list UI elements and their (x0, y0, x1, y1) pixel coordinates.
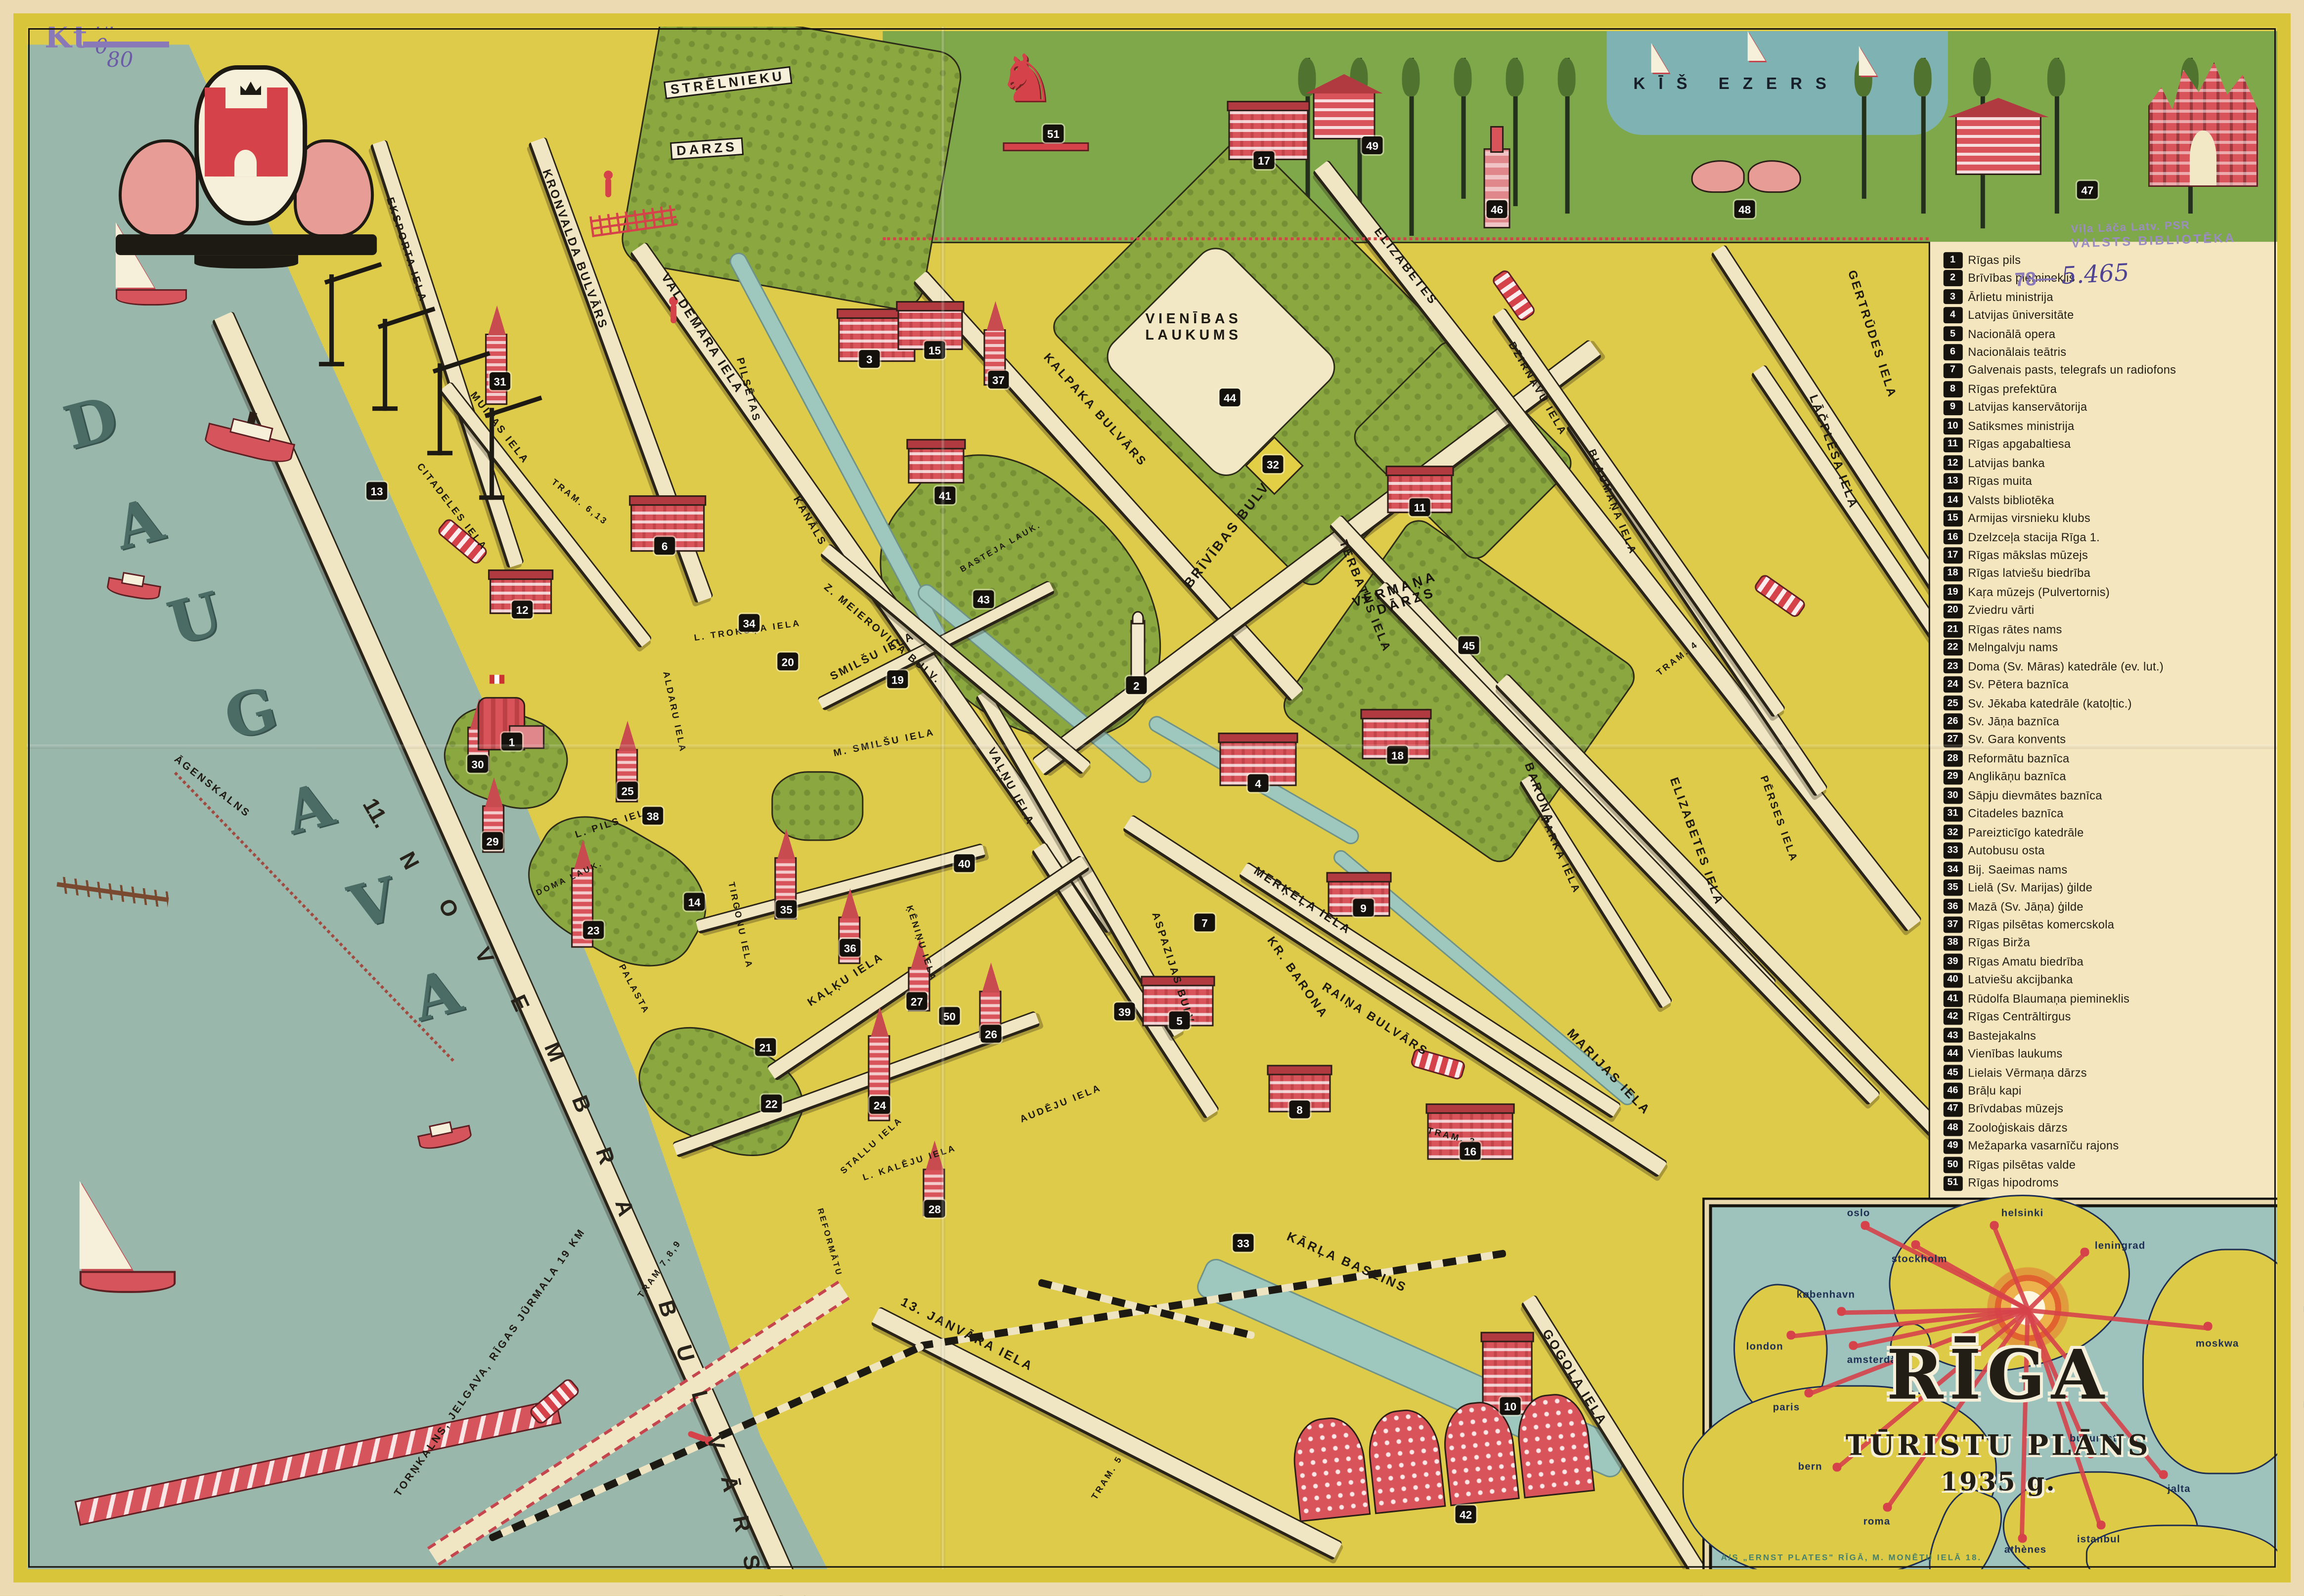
poi-marker-29: 29 (482, 832, 503, 850)
legend-number: 22 (1944, 640, 1962, 656)
poi-marker-34: 34 (739, 614, 759, 632)
legend-item: 35Lielā (Sv. Marijas) ģilde (1944, 880, 2092, 896)
legend-item: 15Armijas virsnieku klubs (1944, 511, 2090, 526)
legend-label: Rīgas muita (1968, 475, 2032, 488)
legend-number: 37 (1944, 917, 1962, 933)
street-label: AUDĒJU IELA (1019, 1083, 1103, 1125)
poi-marker-45: 45 (1459, 636, 1479, 654)
street-label: ALDARU IELA (660, 671, 686, 754)
legend-item: 48Zooloģiskais dārzs (1944, 1120, 2068, 1136)
legend-label: Sv. Pētera baznīca (1968, 678, 2069, 691)
poi-marker-42: 42 (1456, 1506, 1476, 1523)
legend-number: 19 (1944, 585, 1962, 601)
city-name: københavn (1797, 1291, 1855, 1301)
poi-marker-38: 38 (642, 807, 663, 824)
jump-hurdle (1003, 142, 1089, 151)
street-label: GERTRŪDES IELA (1845, 268, 1899, 400)
legend-label: Bij. Saeimas nams (1968, 863, 2067, 876)
legend-number: 43 (1944, 1028, 1962, 1043)
poi-marker-9: 9 (1353, 899, 1374, 916)
poi-marker-44: 44 (1219, 388, 1240, 406)
poi-marker-11: 11 (1410, 498, 1430, 516)
plaza-label: VIENĪBASLAUKUMS (1145, 311, 1241, 344)
legend-label: Rīgas pilsētas valde (1968, 1158, 2076, 1171)
city-name: athènes (2004, 1546, 2047, 1556)
legend-item: 49Mežaparka vasarnīču rajons (1944, 1138, 2119, 1154)
harbour-crane (329, 274, 334, 366)
poi-marker-47: 47 (2077, 181, 2098, 199)
poi-marker-25: 25 (617, 781, 638, 799)
riga-tourist-map-1935: VIENĪBASLAUKUMSSTRĒLNIEKUDARZSVĒRMAŅADĀR… (0, 0, 2304, 1596)
legend-item: 5Nacionālā opera (1944, 326, 2055, 342)
legend-label: Anglikāņu baznīca (1968, 770, 2066, 783)
legend-number: 33 (1944, 843, 1962, 859)
tennis-player (605, 178, 611, 197)
fold-crease-vertical (940, 0, 945, 1596)
city-dot (2204, 1322, 2212, 1330)
legend-item: 18Rīgas latviešu biedrība (1944, 566, 2090, 582)
legend-number: 1 (1944, 252, 1962, 268)
legend-label: Doma (Sv. Māras) katedrāle (ev. lut.) (1968, 659, 2164, 673)
lake-sailboat-icon (1651, 43, 1669, 73)
legend-number: 50 (1944, 1157, 1962, 1173)
city-name: helsinki (2001, 1208, 2044, 1219)
legend-number: 48 (1944, 1120, 1962, 1136)
city-dot (2097, 1520, 2105, 1529)
legend-item: 14Valsts bibliotēka (1944, 492, 2054, 508)
legend-label: Rīgas latviešu biedrība (1968, 567, 2090, 580)
legend-number: 4 (1944, 307, 1962, 323)
pine-tree (2055, 58, 2059, 214)
panorama-strip: KĪŠ EZERS (883, 31, 2282, 243)
city-name: istanbul (2077, 1535, 2121, 1546)
legend-label: Latvijas kanservātorija (1968, 401, 2087, 414)
hippodrome-horse-and-rider: ♞ (997, 47, 1055, 113)
legend-item: 20Zviedru vārti (1944, 603, 2035, 619)
publisher-imprint: A/S „ERNST PLATES" RĪGĀ, M. MONĒTU IELĀ … (1721, 1554, 1982, 1563)
legend-item: 33Autobusu osta (1944, 843, 2045, 859)
legend-number: 18 (1944, 566, 1962, 582)
city-name: oslo (1847, 1208, 1870, 1219)
legend-number: 44 (1944, 1046, 1962, 1062)
poi-marker-43: 43 (973, 590, 994, 608)
arms-bracket (116, 234, 377, 255)
legend-number: 26 (1944, 714, 1962, 730)
city-dot (1911, 1240, 1920, 1249)
legend-number: 39 (1944, 954, 1962, 970)
call-number-printed: 78 (2014, 267, 2037, 291)
legend-item: 41Rūdolfa Blaumaņa piemineklis (1944, 991, 2129, 1006)
legend-number: 12 (1944, 455, 1962, 471)
central-market-halls (1289, 1391, 1595, 1519)
library-stamp: Viļa Lāča Latv. PSR VALSTS BIBLIOTĒKA (2071, 216, 2236, 251)
poi-marker-4: 4 (1248, 774, 1269, 792)
legend-label: Vienības laukums (1968, 1047, 2062, 1061)
poi-marker-36: 36 (840, 939, 860, 956)
legend-item: 25Sv. Jēkaba katedrāle (katoļtic.) (1944, 695, 2132, 711)
legend-label: Kaŗa mūzejs (Pulvertornis) (1968, 586, 2110, 599)
sailboat-large (80, 1181, 176, 1293)
poi-marker-21: 21 (755, 1038, 776, 1056)
legend-number: 16 (1944, 529, 1962, 545)
public-building (908, 445, 964, 483)
legend-number: 24 (1944, 677, 1962, 692)
legend-item: 31Citadeles baznīca (1944, 806, 2064, 822)
city-dot (1837, 1307, 1845, 1315)
legend-number: 25 (1944, 695, 1962, 711)
pine-tree (1565, 58, 1569, 214)
pine-tree (1410, 58, 1414, 236)
riga-coat-of-arms (116, 56, 377, 264)
street-label: M. SMILŠU IELA (833, 728, 936, 759)
legend-label: Nacionālais teātris (1968, 345, 2066, 359)
street-label: KRONVALDA BULVĀRS (540, 168, 611, 332)
legend-label: Sv. Jēkaba katedrāle (katoļtic.) (1968, 696, 2132, 710)
stamp-code: Kt (44, 18, 89, 55)
legend-label: Rīgas rātes nams (1968, 623, 2062, 636)
legend-item: 46Brāļu kapi (1944, 1083, 2022, 1099)
church-building (485, 334, 507, 405)
tram-vehicle (1753, 573, 1808, 619)
tennis-player-2 (670, 304, 676, 323)
legend-label: Pareizticīgo katedrāle (1968, 825, 2083, 839)
legend-item: 32Pareizticīgo katedrāle (1944, 824, 2084, 840)
legend-label: Citadeles baznīca (1968, 807, 2063, 820)
freedom-monument (1130, 620, 1145, 685)
legend-number: 31 (1944, 806, 1962, 822)
map-subtitle: TŪRISTU PLĀNS (1712, 1430, 2285, 1463)
poi-marker-12: 12 (512, 601, 532, 618)
legend-label: Latvijas ūniversitāte (1968, 308, 2074, 322)
street-label: VALDEMĀRA IELA (659, 270, 748, 396)
legend-number: 38 (1944, 935, 1962, 951)
legend-item: 9Latvijas kanservātorija (1944, 400, 2087, 416)
legend-number: 6 (1944, 345, 1962, 360)
legend-label: Mazā (Sv. Jāņa) ģilde (1968, 900, 2083, 913)
legend-item: 21Rīgas rātes nams (1944, 621, 2062, 637)
legend-item: 42Rīgas Centrāltirgus (1944, 1009, 2071, 1025)
legend-number: 21 (1944, 621, 1962, 637)
legend-number: 40 (1944, 972, 1962, 988)
legend-number: 7 (1944, 363, 1962, 379)
castle-flag (489, 675, 504, 684)
legend-item: 8Rīgas prefektūra (1944, 382, 2057, 397)
legend-item: 22Melngalvju nams (1944, 640, 2058, 656)
poi-marker-37: 37 (988, 371, 1009, 388)
city-name: leningrad (2095, 1242, 2146, 1252)
legend-number: 34 (1944, 862, 1962, 877)
poi-marker-5: 5 (1169, 1011, 1190, 1029)
poi-marker-2: 2 (1126, 676, 1147, 694)
stamp-fraction-bar (83, 42, 169, 47)
legend-item: 51Rīgas hipodroms (1944, 1175, 2059, 1191)
legend-number: 13 (1944, 474, 1962, 489)
legend-item: 7Galvenais pasts, telegrafs un radiofons (1944, 363, 2176, 379)
legend-item: 47Brīvdabas mūzejs (1944, 1102, 2064, 1118)
call-number-handwritten: 5.465 (2061, 258, 2130, 290)
poi-marker-49: 49 (1362, 136, 1383, 154)
legend-item: 1Rīgas pils (1944, 252, 2021, 268)
legend-number: 35 (1944, 880, 1962, 896)
legend-number: 17 (1944, 548, 1962, 563)
legend-label: Lielā (Sv. Marijas) ģilde (1968, 881, 2092, 894)
legend-item: 44Vienības laukums (1944, 1046, 2063, 1062)
city-dot (2081, 1248, 2089, 1256)
market-hall (1514, 1391, 1595, 1499)
heraldic-lion-left (119, 139, 199, 237)
poi-marker-19: 19 (887, 670, 908, 688)
legend-label: Rīgas Amatu biedrība (1968, 955, 2083, 968)
poi-marker-26: 26 (980, 1025, 1001, 1042)
plaza-label-line2: LAUKUMS (1145, 328, 1241, 344)
legend-number: 47 (1944, 1102, 1962, 1118)
street-label: PĒRSES IELA (1758, 775, 1799, 864)
legend-label: Rīgas pils (1968, 253, 2021, 266)
legend-label: Valsts bibliotēka (1968, 493, 2054, 507)
legend-label: Galvenais pasts, telegrafs un radiofons (1968, 364, 2176, 377)
pine-tree (1513, 58, 1517, 206)
poi-marker-16: 16 (1460, 1142, 1481, 1160)
park-area (618, 2, 966, 314)
legend-label: Melngalvju nams (1968, 641, 2058, 654)
legend-label: Rīgas pilsētas komercskola (1968, 918, 2114, 931)
legend-number: 41 (1944, 991, 1962, 1006)
legend-item: 34Bij. Saeimas nams (1944, 862, 2068, 877)
city-name: roma (1863, 1517, 1891, 1528)
city-dot (1883, 1503, 1892, 1511)
legend-item: 28Reformātu baznīca (1944, 751, 2070, 767)
poi-marker-10: 10 (1500, 1397, 1521, 1415)
accession-stamp: Kt LI-0 80 (44, 18, 89, 55)
legend-item: 37Rīgas pilsētas komercskola (1944, 917, 2114, 933)
zoo-lions (1691, 148, 1801, 193)
legend-number: 29 (1944, 769, 1962, 785)
tram-line-label: TRAM. 5 (1091, 1455, 1125, 1502)
market-hall (1364, 1407, 1445, 1514)
arms-crown (240, 82, 261, 95)
lake-sailboat-icon (1748, 31, 1766, 61)
legend-number: 3 (1944, 289, 1962, 305)
legend-label: Mežaparka vasarnīču rajons (1968, 1139, 2119, 1153)
legend-number: 15 (1944, 511, 1962, 526)
fold-crease-horizontal (0, 744, 2304, 749)
lake-label: KĪŠ EZERS (1634, 76, 1840, 93)
harbour-crane (383, 319, 387, 411)
legend-item: 4Latvijas ūniversitāte (1944, 307, 2074, 323)
pine-tree (1462, 58, 1465, 199)
plaza-label-line1: VIENĪBAS (1145, 311, 1241, 328)
arms-shield (194, 65, 307, 225)
legend-number: 9 (1944, 400, 1962, 416)
poi-marker-35: 35 (776, 900, 797, 918)
poi-marker-6: 6 (654, 537, 675, 555)
poi-marker-7: 7 (1194, 913, 1215, 931)
legend-item: 29Anglikāņu baznīca (1944, 769, 2066, 785)
city-dot (2018, 1534, 2027, 1542)
legend-label: Rīgas mākslas mūzejs (1968, 549, 2088, 562)
legend-number: 11 (1944, 437, 1962, 453)
legend-panel: 1Rīgas pils2Brīvības piemineklis3Ārlietu… (1929, 242, 2283, 1203)
legend-label: Sv. Jāņa baznīca (1968, 715, 2059, 728)
poi-marker-24: 24 (869, 1096, 890, 1114)
pine-tree (1921, 58, 1925, 214)
city-dot (1861, 1221, 1869, 1229)
legend-label: Zviedru vārti (1968, 604, 2034, 617)
legend-label: Rīgas hipodroms (1968, 1176, 2059, 1190)
mezaparks-house (1313, 92, 1375, 139)
legend-label: Rīgas Birža (1968, 937, 2030, 950)
legend-number: 51 (1944, 1175, 1962, 1191)
legend-number: 36 (1944, 899, 1962, 914)
poi-marker-39: 39 (1114, 1002, 1135, 1020)
lake-sailboat-icon (1859, 46, 1877, 76)
legend-label: Zooloģiskais dārzs (1968, 1121, 2068, 1134)
legend-label: Dzelzceļa stacija Rīga 1. (1968, 530, 2100, 544)
street-label: PALASTA (616, 963, 650, 1016)
legend-number: 46 (1944, 1083, 1962, 1099)
poi-marker-31: 31 (489, 372, 510, 390)
legend-number: 10 (1944, 418, 1962, 434)
poi-marker-17: 17 (1254, 151, 1275, 169)
poi-marker-32: 32 (1263, 455, 1284, 473)
legend-label: Latviešu akcijbanka (1968, 973, 2073, 987)
library-call-number: 78—5.465 (2014, 258, 2130, 294)
poi-marker-3: 3 (859, 350, 880, 368)
map-year: 1935 g. (1712, 1468, 2285, 1498)
legend-number: 30 (1944, 787, 1962, 803)
legend-number: 32 (1944, 824, 1962, 840)
poi-marker-40: 40 (954, 854, 975, 872)
legend-item: 38Rīgas Birža (1944, 935, 2030, 951)
poi-marker-20: 20 (777, 652, 798, 670)
legend-item: 17Rīgas mākslas mūzejs (1944, 548, 2088, 563)
legend-label: Rīgas apgabaltiesa (1968, 438, 2071, 451)
legend-item: 11Rīgas apgabaltiesa (1944, 437, 2071, 453)
legend-label: Rīgas Centrāltirgus (1968, 1010, 2071, 1024)
legend-number: 28 (1944, 751, 1962, 767)
poi-marker-46: 46 (1487, 200, 1507, 218)
legend-label: Satiksmes ministrija (1968, 420, 2074, 433)
legend-label: Lielais Vērmaņa dārzs (1968, 1066, 2087, 1079)
legend-item: 30Sāpju dievmātes baznīca (1944, 787, 2102, 803)
legend-item: 43Bastejakalns (1944, 1028, 2036, 1043)
legend-number: 23 (1944, 658, 1962, 674)
poi-marker-30: 30 (467, 755, 488, 773)
legend-label: Brīvdabas mūzejs (1968, 1103, 2063, 1116)
legend-label: Rūdolfa Blaumaņa piemineklis (1968, 992, 2129, 1005)
market-hall (1289, 1414, 1371, 1522)
legend-label: Sāpju dievmātes baznīca (1968, 789, 2102, 802)
legend-item: 50Rīgas pilsētas valde (1944, 1157, 2076, 1173)
poi-marker-23: 23 (583, 921, 604, 939)
poi-marker-33: 33 (1233, 1234, 1253, 1251)
panorama-dotted-border (883, 237, 1928, 240)
legend-label: Reformātu baznīca (1968, 752, 2069, 765)
harbour-crane (438, 363, 442, 455)
open-air-museum-loghouse (1955, 116, 2041, 175)
legend-item: 26Sv. Jāņa baznīca (1944, 714, 2059, 730)
pine-tree (1862, 58, 1866, 199)
legend-item: 12Latvijas banka (1944, 455, 2045, 471)
legend-number: 8 (1944, 382, 1962, 397)
city-name: stockholm (1892, 1255, 1948, 1265)
city-dot (1990, 1221, 1998, 1229)
legend-label: Autobusu osta (1968, 844, 2044, 858)
map-title: RĪGA (1712, 1335, 2285, 1415)
title-inset-europe-map: oslostockholmhelsinkileningradmoskwakøbe… (1709, 1204, 2288, 1572)
legend-item: 23Doma (Sv. Māras) katedrāle (ev. lut.) (1944, 658, 2164, 674)
poi-marker-22: 22 (761, 1094, 782, 1112)
legend-label: Armijas virsnieku klubs (1968, 512, 2090, 525)
legend-number: 20 (1944, 603, 1962, 619)
poi-marker-51: 51 (1043, 125, 1063, 142)
kisezers-lake: KĪŠ EZERS (1607, 31, 1948, 135)
street-label: REFORMĀTU (815, 1208, 843, 1278)
legend-label: Brāļu kapi (1968, 1084, 2021, 1097)
legend-number: 42 (1944, 1009, 1962, 1025)
poi-marker-13: 13 (366, 482, 387, 500)
legend-item: 19Kaŗa mūzejs (Pulvertornis) (1944, 585, 2110, 601)
poi-marker-48: 48 (1734, 200, 1755, 218)
legend-label: Nacionālā opera (1968, 327, 2055, 341)
poi-marker-27: 27 (906, 992, 927, 1010)
legend-item: 24Sv. Pētera baznīca (1944, 677, 2069, 692)
legend-number: 49 (1944, 1138, 1962, 1154)
legend-item: 36Mazā (Sv. Jāņa) ģilde (1944, 899, 2083, 914)
legend-item: 40Latviešu akcijbanka (1944, 972, 2073, 988)
legend-item: 13Rīgas muita (1944, 474, 2032, 489)
poi-marker-8: 8 (1289, 1100, 1310, 1118)
legend-number: 2 (1944, 270, 1962, 286)
legend-item: 6Nacionālais teātris (1944, 345, 2067, 360)
legend-label: Rīgas prefektūra (1968, 383, 2057, 396)
legend-number: 5 (1944, 326, 1962, 342)
legend-label: Latvijas banka (1968, 456, 2045, 470)
legend-label: Bastejakalns (1968, 1029, 2036, 1042)
arms-castle (214, 108, 279, 176)
legend-item: 39Rīgas Amatu biedrība (1944, 954, 2083, 970)
poi-marker-14: 14 (684, 893, 705, 910)
legend-item: 10Satiksmes ministrija (1944, 418, 2075, 434)
legend-number: 14 (1944, 492, 1962, 508)
legend-item: 45Lielais Vērmaņa dārzs (1944, 1065, 2087, 1080)
legend-number: 45 (1944, 1065, 1962, 1080)
legend-item: 16Dzelzceļa stacija Rīga 1. (1944, 529, 2100, 545)
